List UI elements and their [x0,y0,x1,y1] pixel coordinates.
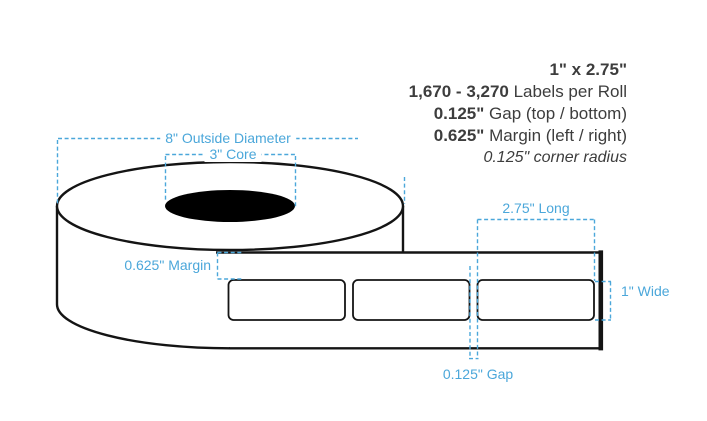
label-sticker-3 [478,280,595,320]
spec-size: 1" x 2.75" [409,59,627,81]
roll-core-hole [165,190,295,222]
label-sticker-1 [229,280,346,320]
spec-margin: 0.625" Margin (left / right) [409,125,627,147]
spec-gap: 0.125" Gap (top / bottom) [409,103,627,125]
gap-label: 0.125" Gap [443,366,513,382]
core-label: 3" Core [205,146,262,162]
spec-corner-radius: 0.125" corner radius [409,147,627,169]
label-roll-diagram: 8" Outside Diameter 3" Core 0.625" Margi… [0,0,707,421]
labels-row [229,280,595,320]
label-length-label: 2.75" Long [502,200,569,216]
spec-block: 1" x 2.75" 1,670 - 3,270 Labels per Roll… [409,59,627,169]
outside-diameter-label: 8" Outside Diameter [160,130,296,146]
roll-bottom-arc [57,304,230,348]
spec-labels-per-roll: 1,670 - 3,270 Labels per Roll [409,81,627,103]
label-sticker-2 [353,280,470,320]
label-width-label: 1" Wide [621,283,670,299]
margin-label: 0.625" Margin [124,257,211,273]
